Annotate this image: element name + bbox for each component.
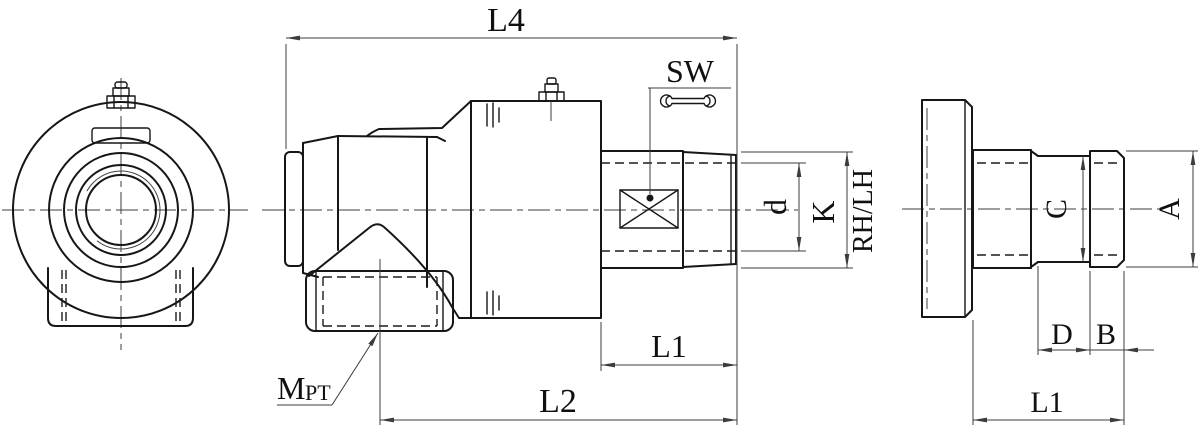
dim-label-d-end: D — [1051, 318, 1073, 351]
dim-b: B — [1090, 271, 1154, 425]
wrench-icon — [661, 95, 716, 107]
leader-dot — [647, 195, 654, 202]
dim-label-b: B — [1096, 318, 1116, 351]
midbody-top-edge — [338, 136, 437, 137]
technical-drawing: L4 SW d K RH/LH — [0, 0, 1200, 428]
end-cap — [285, 152, 303, 266]
dim-label-l4: L4 — [487, 2, 525, 39]
label-rh-lh: RH/LH — [848, 169, 879, 253]
side-view: L4 SW d K RH/LH — [262, 2, 879, 425]
drawing-canvas: L4 SW d K RH/LH — [0, 0, 1200, 428]
dim-label-a: A — [1153, 198, 1186, 220]
parting-tick-marks — [487, 103, 499, 315]
clamp-tab — [367, 101, 471, 136]
collar-top-edge — [303, 136, 338, 143]
dim-l1-side: L1 — [601, 322, 737, 371]
dim-label-c: C — [1040, 199, 1073, 219]
dim-d-end: D — [1038, 266, 1090, 355]
midbody-top-slant — [437, 137, 445, 141]
dim-label-d: d — [757, 199, 793, 215]
dim-label-l1-end: L1 — [1030, 386, 1063, 419]
dim-label-sw: SW — [666, 53, 715, 89]
dim-c: C — [1040, 156, 1083, 262]
dim-label-l1-side: L1 — [651, 328, 687, 364]
dim-label-l2: L2 — [539, 383, 577, 420]
grease-nipple-icon — [539, 78, 564, 121]
dim-sw: SW — [647, 53, 732, 202]
rotor-view: C A D B L1 — [902, 100, 1198, 425]
thread-label-m: M — [277, 370, 305, 406]
front-view — [2, 78, 248, 350]
port-thread-callout: M PT — [277, 333, 378, 406]
thread-label-pt: PT — [305, 380, 331, 405]
dim-label-k: K — [805, 200, 841, 223]
dim-d: d — [741, 163, 806, 251]
